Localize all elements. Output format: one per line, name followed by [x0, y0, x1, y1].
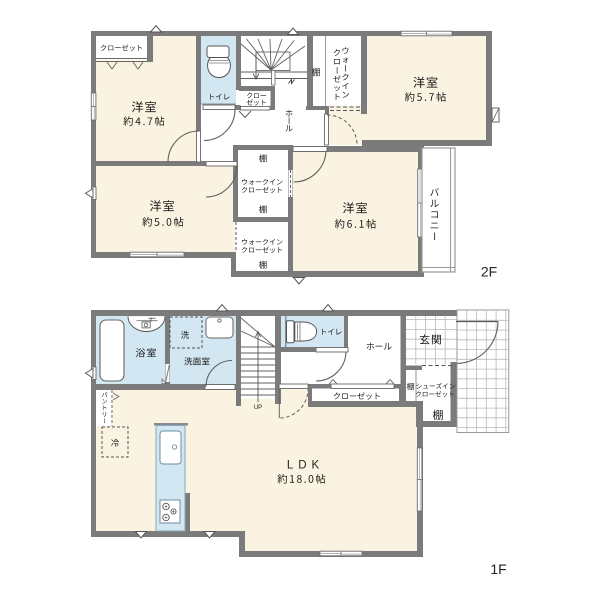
svg-text:UP: UP: [254, 405, 262, 411]
svg-text:LDK: LDK: [287, 460, 324, 472]
svg-text:2F: 2F: [481, 264, 497, 280]
svg-text:1F: 1F: [490, 561, 506, 577]
